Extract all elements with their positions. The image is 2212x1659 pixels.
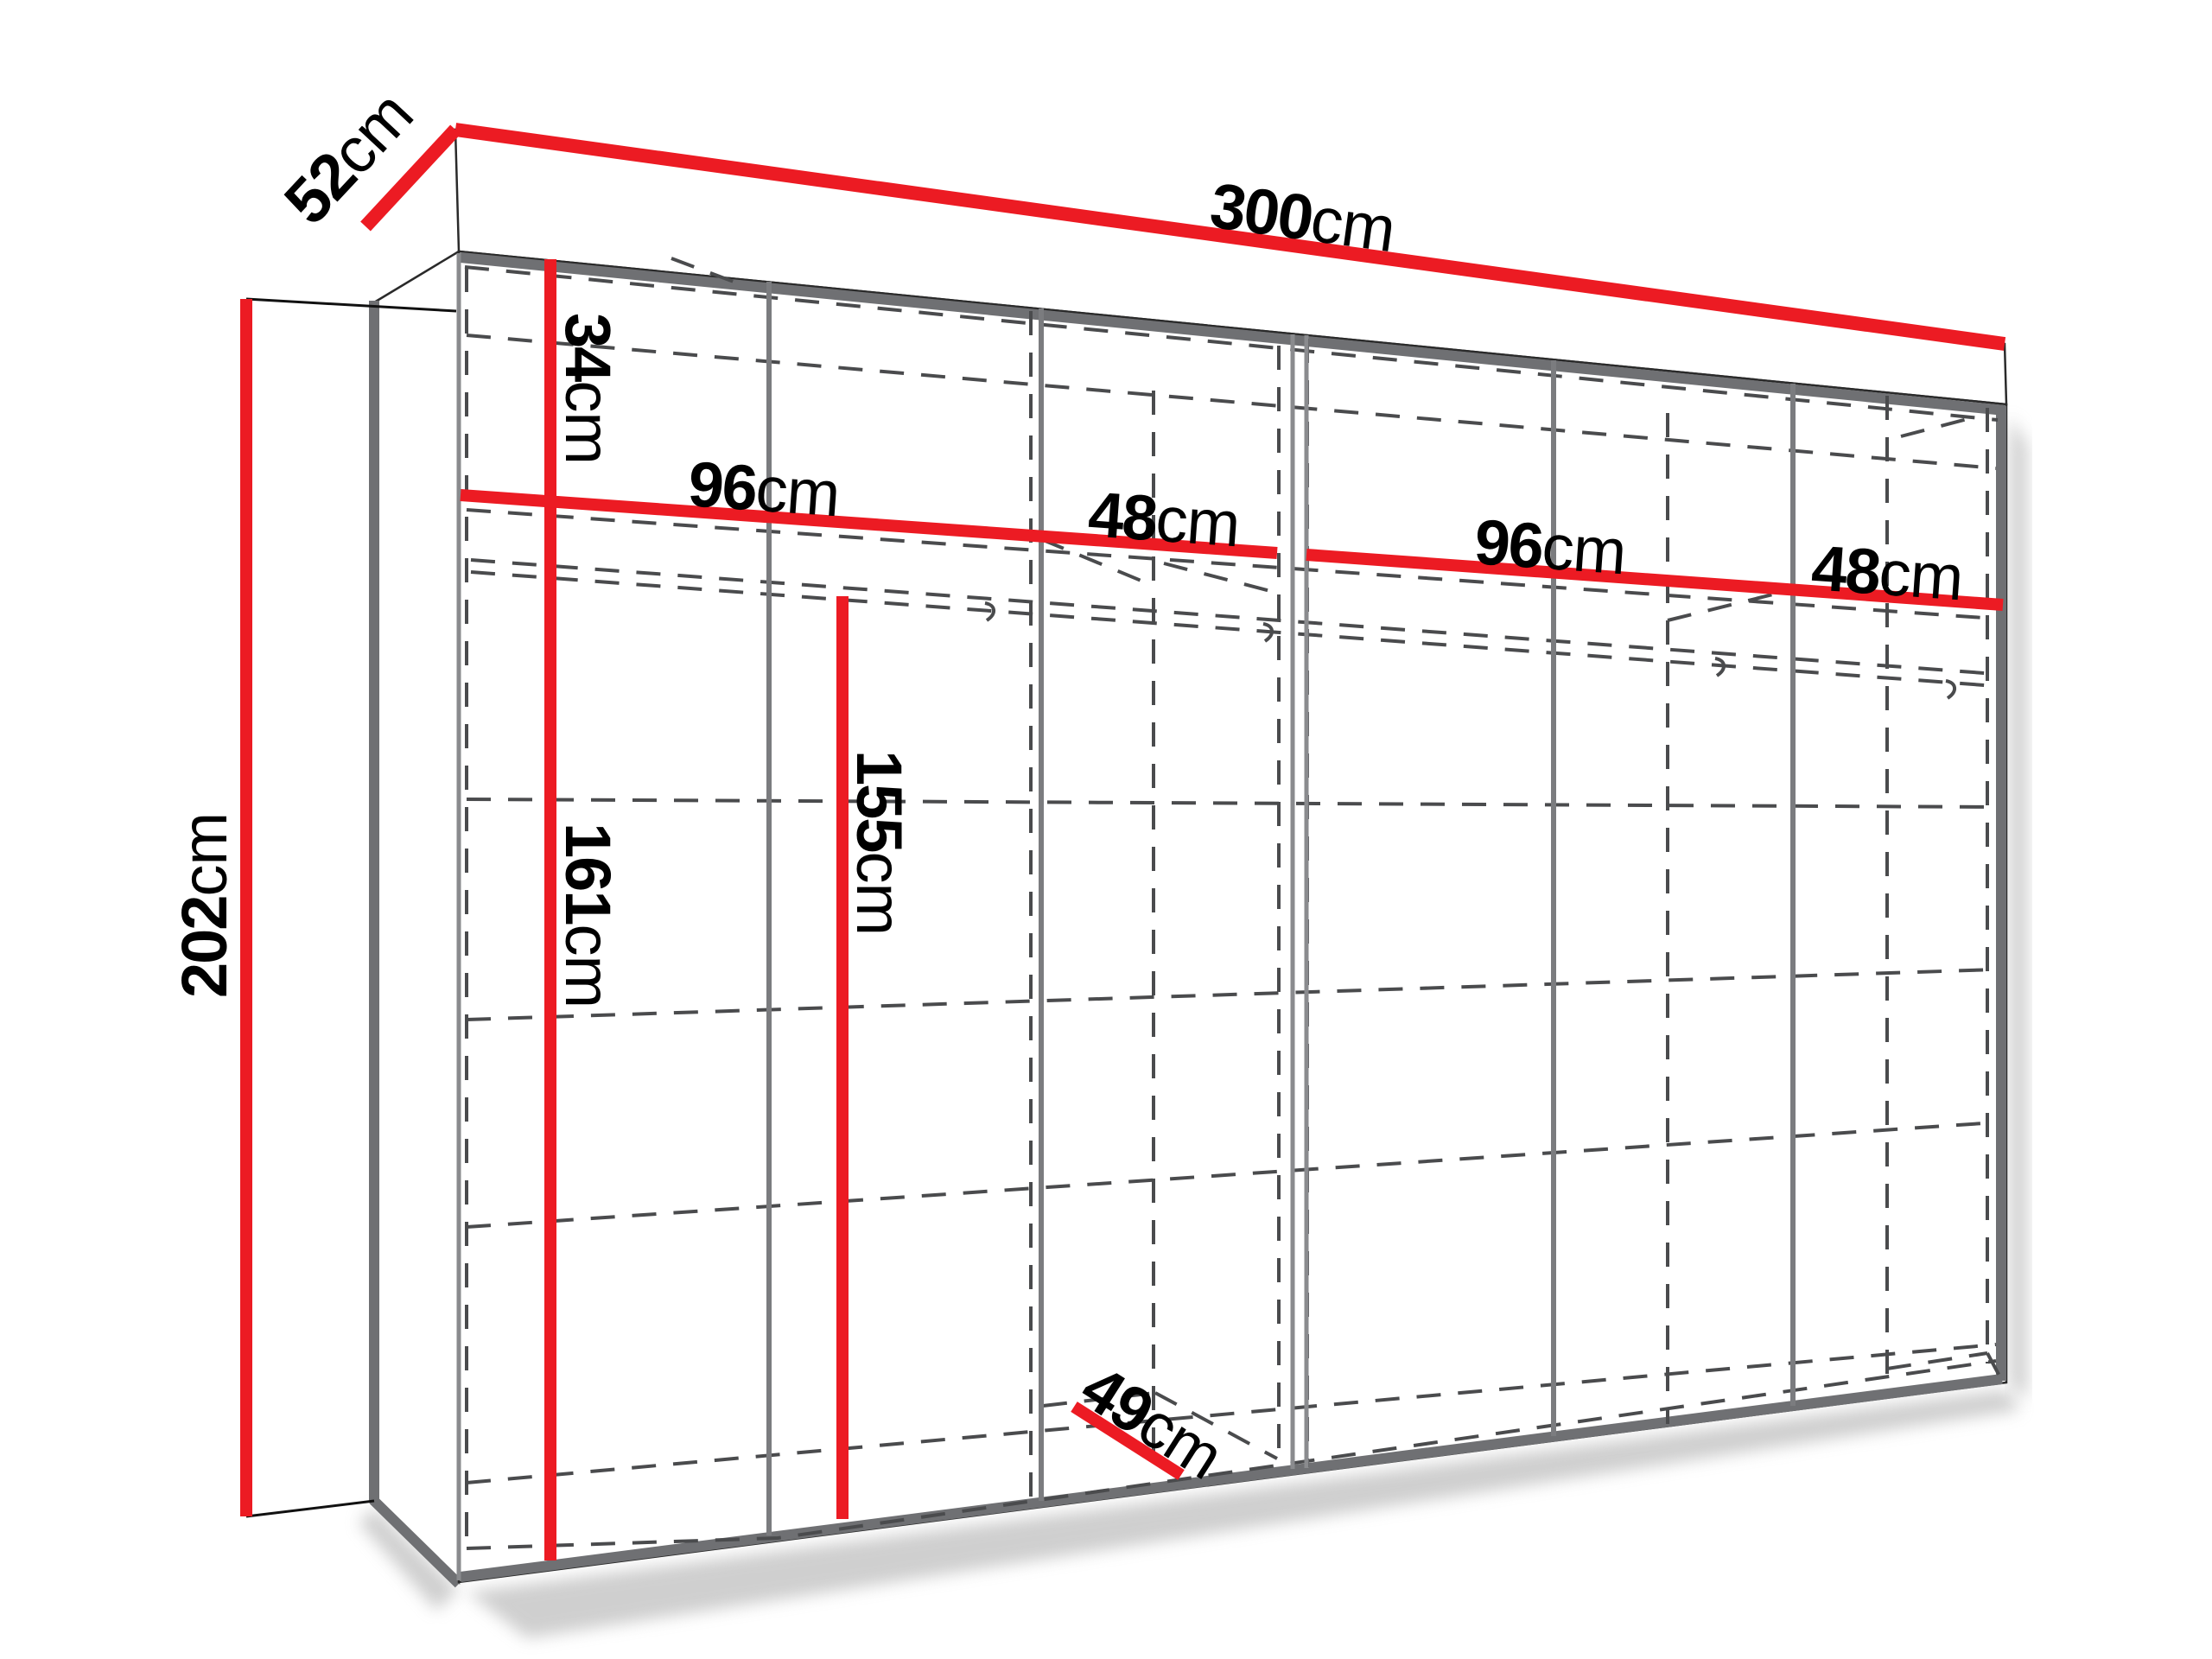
label-height: 202cm (168, 813, 240, 998)
wardrobe-diagram: 300cm 52cm 202cm 34cm 96cm 48cm 96cm 48c… (0, 0, 2212, 1659)
label-left-single-section: 48cm (1086, 478, 1242, 560)
label-right-double-section: 96cm (1472, 505, 1628, 588)
label-right-single-section: 48cm (1809, 531, 1965, 613)
label-left-hanging-height: 161cm (552, 823, 624, 1007)
label-depth: 52cm (270, 78, 426, 238)
label-top-shelf-height: 34cm (552, 313, 624, 464)
side-panel (374, 251, 459, 1582)
height-extension-bottom (246, 1501, 374, 1516)
shadow-right (2010, 416, 2027, 1400)
label-right-hanging-height: 155cm (843, 750, 915, 935)
label-left-double-section: 96cm (686, 448, 842, 530)
page: { "diagram": { "title": "wardrobe-dimens… (0, 0, 2212, 1659)
